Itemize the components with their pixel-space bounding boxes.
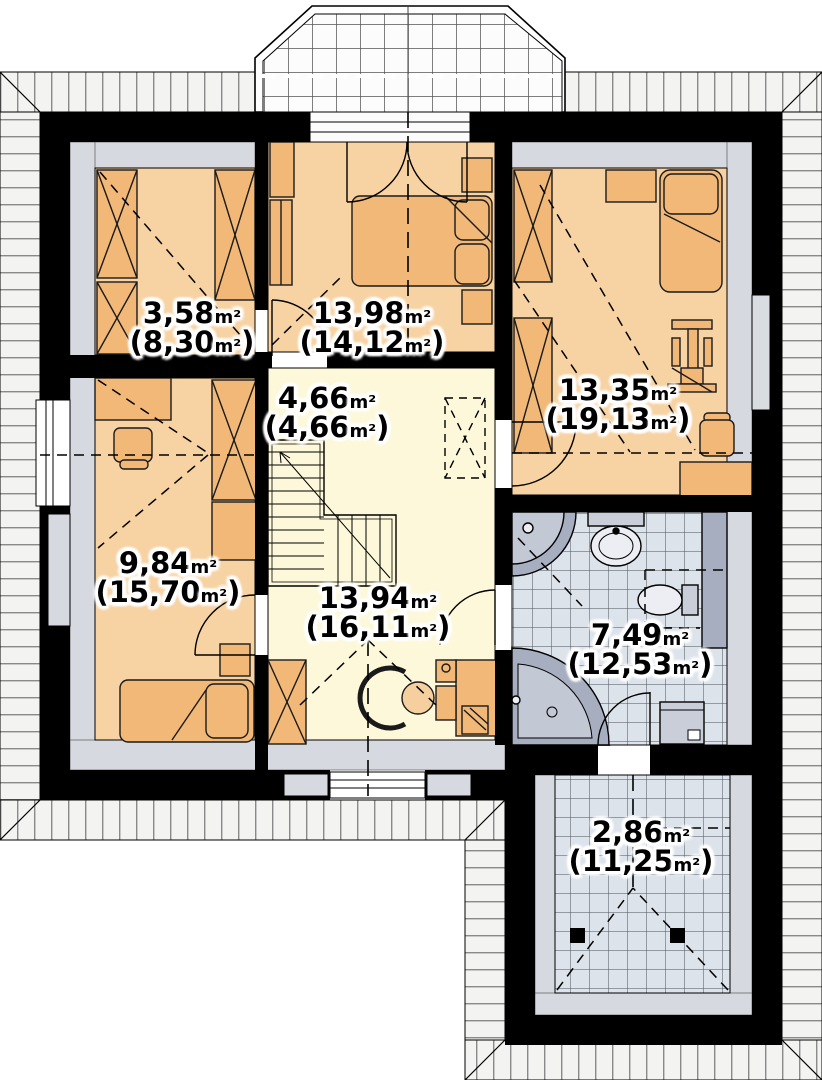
wardrobe-icon xyxy=(215,170,255,300)
floor-plan xyxy=(0,0,822,1080)
pillow-icon xyxy=(455,244,489,284)
wardrobe-icon xyxy=(212,380,256,500)
drawer-unit-icon xyxy=(436,686,456,720)
dormer-window xyxy=(255,6,565,112)
desk-icon xyxy=(680,462,752,498)
balcony-door xyxy=(330,772,425,798)
wardrobe-icon xyxy=(97,170,137,278)
area-line: 9,84m² xyxy=(96,549,241,578)
room-label-bedroom-right: 13,35m² (19,13m²) xyxy=(546,376,691,434)
window xyxy=(36,400,70,506)
toilet-icon xyxy=(638,585,698,615)
total-area-line: (12,53m²) xyxy=(568,650,713,679)
window xyxy=(427,774,471,796)
balcony-door xyxy=(310,112,470,142)
pillow-icon xyxy=(206,684,248,738)
pillow-icon xyxy=(664,174,718,214)
office-chair-icon xyxy=(114,428,152,469)
room-label-bedroom-left: 9,84m² (15,70m²) xyxy=(96,549,241,607)
nightstand-icon xyxy=(462,290,492,324)
shelf-icon xyxy=(606,170,656,202)
column-post xyxy=(570,928,585,943)
total-area-line: (11,25m²) xyxy=(569,847,714,876)
total-area-line: (14,12m²) xyxy=(300,328,445,357)
room-loggia-floor xyxy=(555,775,730,993)
room-label-bathroom: 7,49m² (12,53m²) xyxy=(568,621,713,679)
area-line: 7,49m² xyxy=(568,621,713,650)
wardrobe-icon xyxy=(514,170,552,282)
total-area-line: (16,11m²) xyxy=(306,613,451,642)
area-line: 4,66m² xyxy=(265,384,390,413)
room-label-bedroom-top: 13,98m² (14,12m²) xyxy=(300,299,445,357)
office-chair-icon xyxy=(700,413,734,456)
area-line: 13,98m² xyxy=(300,299,445,328)
area-line: 2,86m² xyxy=(569,818,714,847)
window xyxy=(284,774,328,796)
washing-machine-icon xyxy=(660,702,704,744)
area-line: 13,35m² xyxy=(546,376,691,405)
nightstand-icon xyxy=(220,644,250,676)
window xyxy=(752,295,770,410)
phone-icon xyxy=(436,660,456,682)
area-line: 13,94m² xyxy=(306,584,451,613)
floor-plan-scene: 3,58m² (8,30m²) 13,98m² (14,12m²) 4,66m²… xyxy=(0,0,822,1080)
room-label-loggia: 2,86m² (11,25m²) xyxy=(569,818,714,876)
total-area-line: (4,66m²) xyxy=(265,413,390,442)
room-label-closet: 3,58m² (8,30m²) xyxy=(130,299,255,357)
total-area-line: (19,13m²) xyxy=(546,405,691,434)
wardrobe-icon xyxy=(268,660,306,744)
area-line: 3,58m² xyxy=(130,299,255,328)
total-area-line: (15,70m²) xyxy=(96,578,241,607)
desk-icon xyxy=(95,378,171,420)
room-label-hall: 13,94m² (16,11m²) xyxy=(306,584,451,642)
room-label-stair-hall: 4,66m² (4,66m²) xyxy=(265,384,390,442)
wardrobe-icon xyxy=(270,142,294,197)
window xyxy=(48,514,70,626)
total-area-line: (8,30m²) xyxy=(130,328,255,357)
sink-icon xyxy=(588,512,644,566)
